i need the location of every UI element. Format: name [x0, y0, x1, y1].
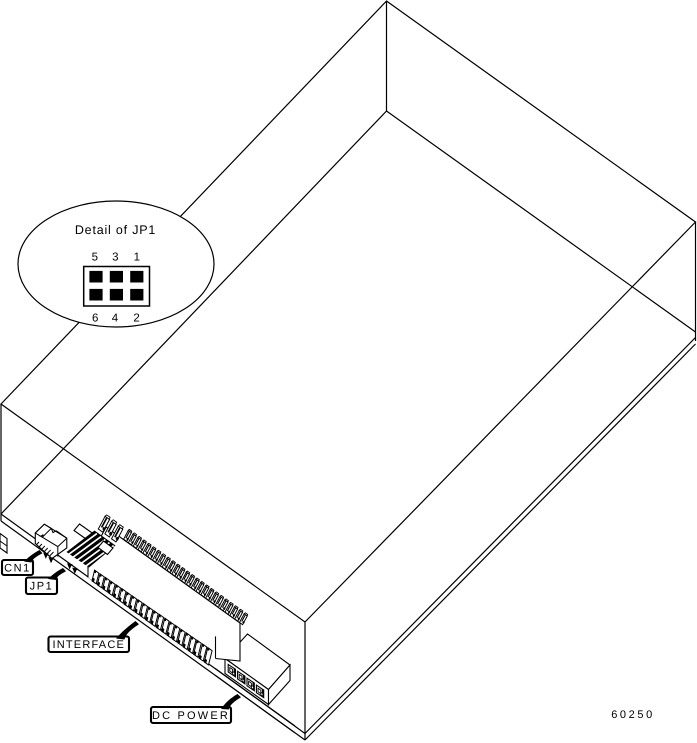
svg-text:3: 3 — [112, 252, 118, 264]
svg-text:1: 1 — [134, 252, 140, 264]
svg-text:2: 2 — [133, 312, 139, 324]
svg-text:6: 6 — [92, 312, 98, 324]
svg-text:CN1: CN1 — [4, 562, 31, 574]
svg-text:5: 5 — [92, 252, 98, 264]
svg-text:Detail of JP1: Detail of JP1 — [75, 223, 156, 237]
svg-text:DC POWER: DC POWER — [152, 710, 230, 722]
svg-text:60250: 60250 — [611, 709, 655, 721]
svg-text:4: 4 — [112, 312, 119, 324]
svg-text:INTERFACE: INTERFACE — [52, 639, 125, 651]
svg-text:JP1: JP1 — [30, 581, 54, 593]
